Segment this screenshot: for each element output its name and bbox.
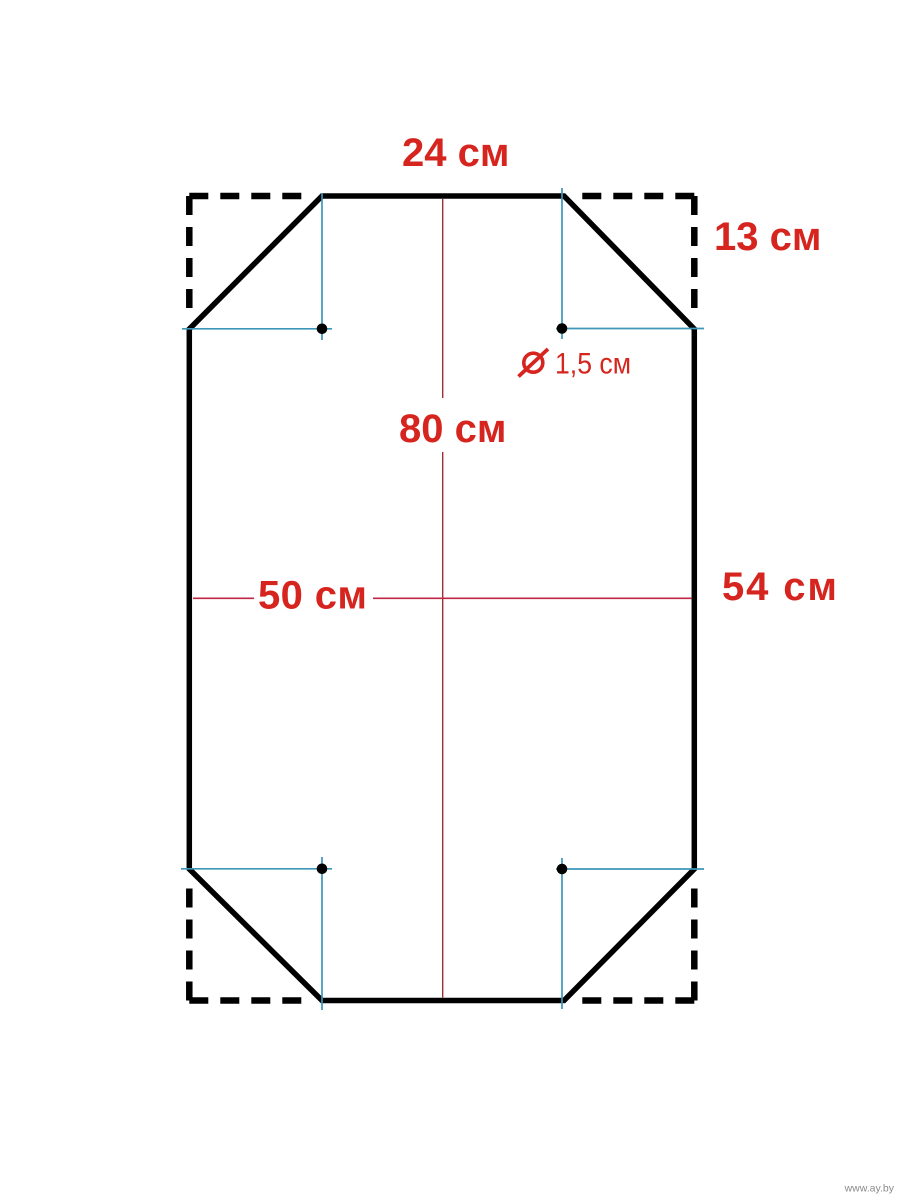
svg-text:www.ay.by: www.ay.by xyxy=(844,1183,895,1195)
svg-text:13 см: 13 см xyxy=(714,215,821,259)
svg-text:80 см: 80 см xyxy=(399,407,506,451)
svg-text:24 см: 24 см xyxy=(402,131,509,175)
svg-text:1,5 см: 1,5 см xyxy=(555,347,631,380)
svg-text:54 см: 54 см xyxy=(722,565,837,609)
svg-text:50 см: 50 см xyxy=(258,574,367,618)
